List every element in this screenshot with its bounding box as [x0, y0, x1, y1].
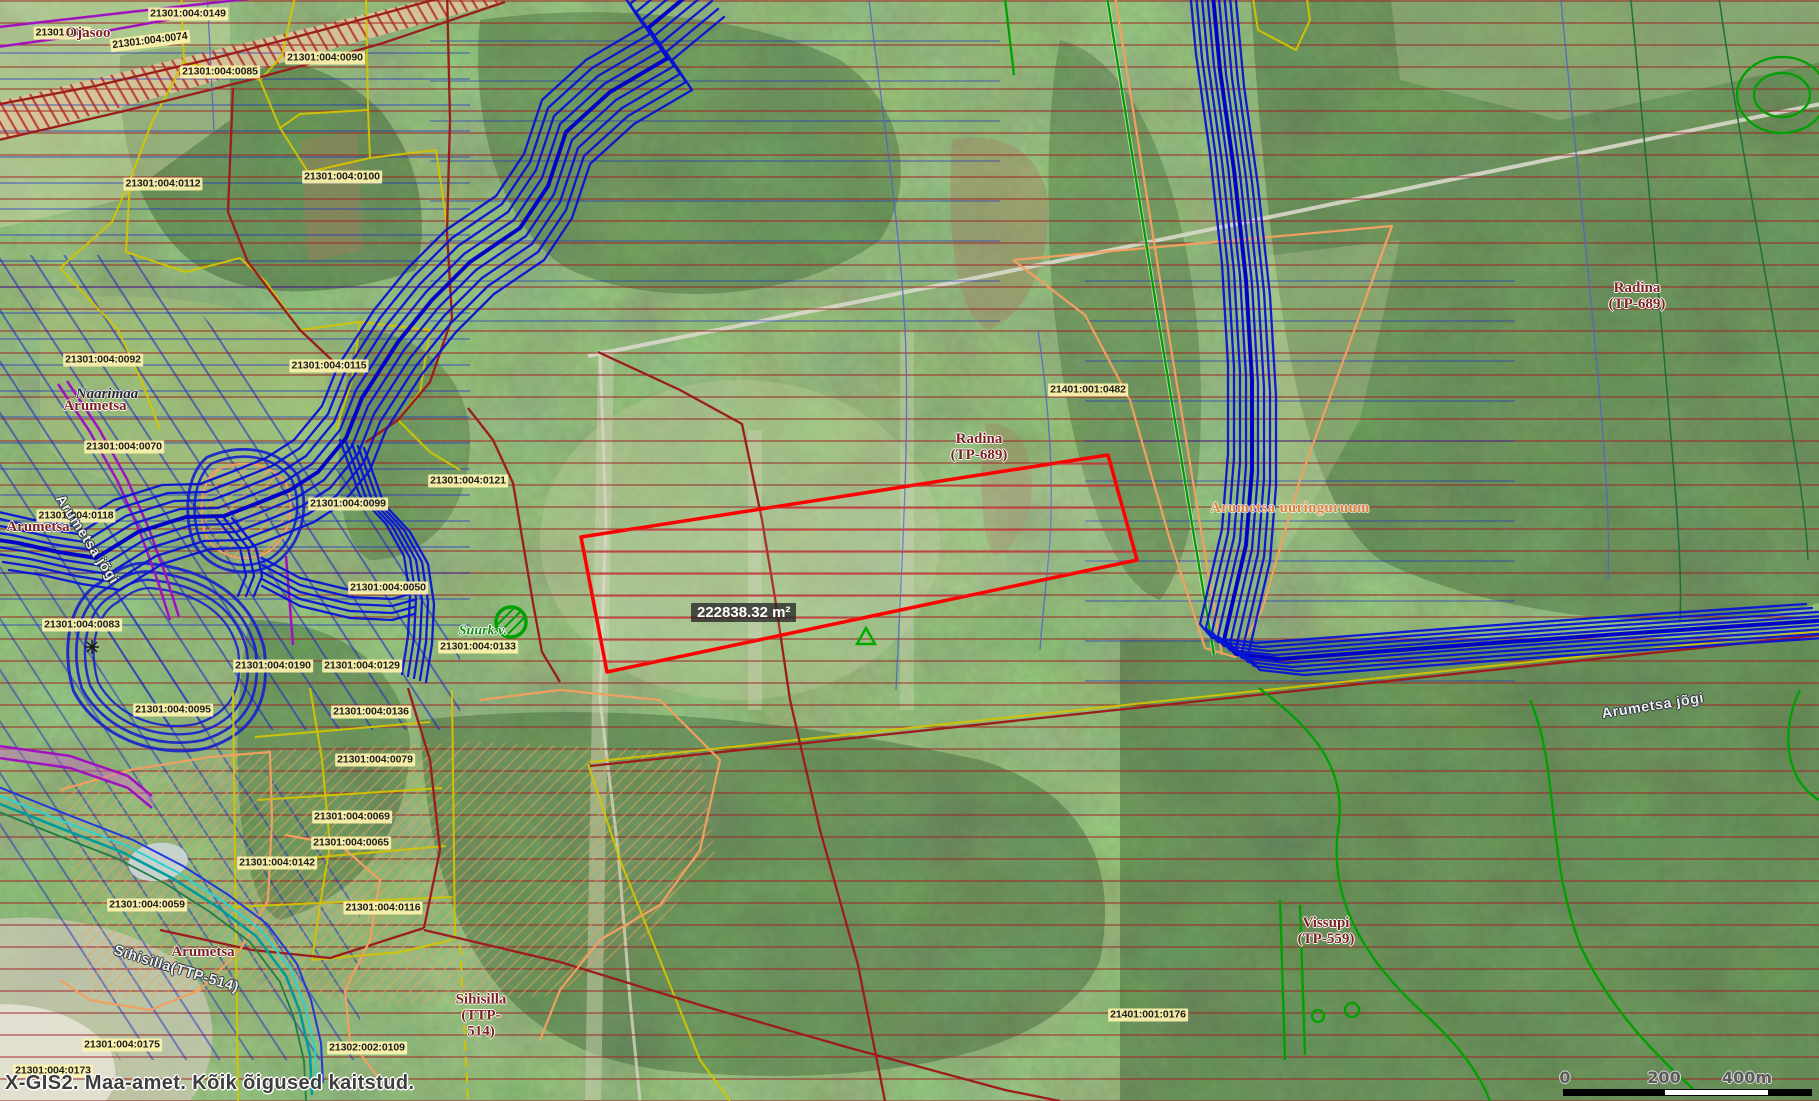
- scale-bar: 0 200 400m: [1548, 1068, 1816, 1098]
- cadastral-parcel-label: 21301:004:0092: [63, 354, 143, 367]
- cadastral-parcel-label: 21301:004:0142: [237, 857, 317, 870]
- cadastral-parcel-label: 21301:004:0121: [428, 475, 508, 488]
- cadastral-parcel-label: 21301:004:0095: [133, 704, 213, 717]
- cadastral-parcel-label: 21301:004:0175: [82, 1039, 162, 1052]
- attribution-text: X-GIS2. Maa-amet. Kõik õigused kaitstud.: [5, 1072, 414, 1095]
- scale-tick-200: 200: [1647, 1068, 1680, 1087]
- cadastral-parcel-label: 21301:004:0065: [311, 837, 391, 850]
- farmstead-marker-icon: [85, 640, 99, 654]
- scale-tick-400: 400m: [1722, 1068, 1772, 1087]
- scale-bar-graphic: [1563, 1089, 1812, 1096]
- map-canvas: [0, 0, 1819, 1101]
- cadastral-parcel-label: 21301:004:0115: [289, 360, 368, 373]
- cadastral-parcel-label: 21301:004:0100: [302, 171, 382, 184]
- cadastral-parcel-label: 21401:001:0176: [1108, 1009, 1188, 1022]
- cadastral-parcel-label: 21301:004:0116: [343, 902, 422, 915]
- cadastral-parcel-label: 21301:004:0190: [233, 660, 313, 673]
- cadastral-parcel-label: 21301:004:0136: [331, 706, 411, 719]
- cadastral-parcel-label: 21301:004:: [34, 27, 91, 40]
- cadastral-parcel-label: 21401:001:0482: [1048, 384, 1128, 397]
- cadastral-parcel-label: 21301:004:0085: [180, 66, 260, 79]
- cadastral-parcel-label: 21301:004:0079: [335, 754, 415, 767]
- cadastral-parcel-label: 21301:004:0083: [42, 619, 122, 632]
- cadastral-parcel-label: 21301:004:0090: [285, 52, 365, 65]
- cadastral-parcel-label: 21301:004:0112: [123, 178, 202, 191]
- cadastral-parcel-label: 21301:004:0069: [312, 811, 392, 824]
- map-viewport[interactable]: 21301:004:014921301:004:21301:004:007421…: [0, 0, 1819, 1101]
- cadastral-parcel-label: 21301:004:0050: [348, 582, 428, 595]
- cadastral-parcel-label: 21301:004:0129: [322, 660, 402, 673]
- scale-tick-0: 0: [1559, 1068, 1570, 1087]
- area-measurement-label: 222838.32 m²: [691, 603, 796, 622]
- cadastral-parcel-label: 21301:004:0118: [36, 510, 115, 523]
- cadastral-parcel-label: 21301:004:0059: [107, 899, 187, 912]
- cadastral-parcel-label: 21301:004:0099: [308, 498, 388, 511]
- cadastral-parcel-label: 21301:004:0070: [84, 441, 164, 454]
- cadastral-parcel-label: 21301:004:0133: [438, 641, 518, 654]
- cadastral-parcel-label: 21301:004:0149: [148, 8, 228, 21]
- cadastral-parcel-label: 21302:002:0109: [327, 1042, 407, 1055]
